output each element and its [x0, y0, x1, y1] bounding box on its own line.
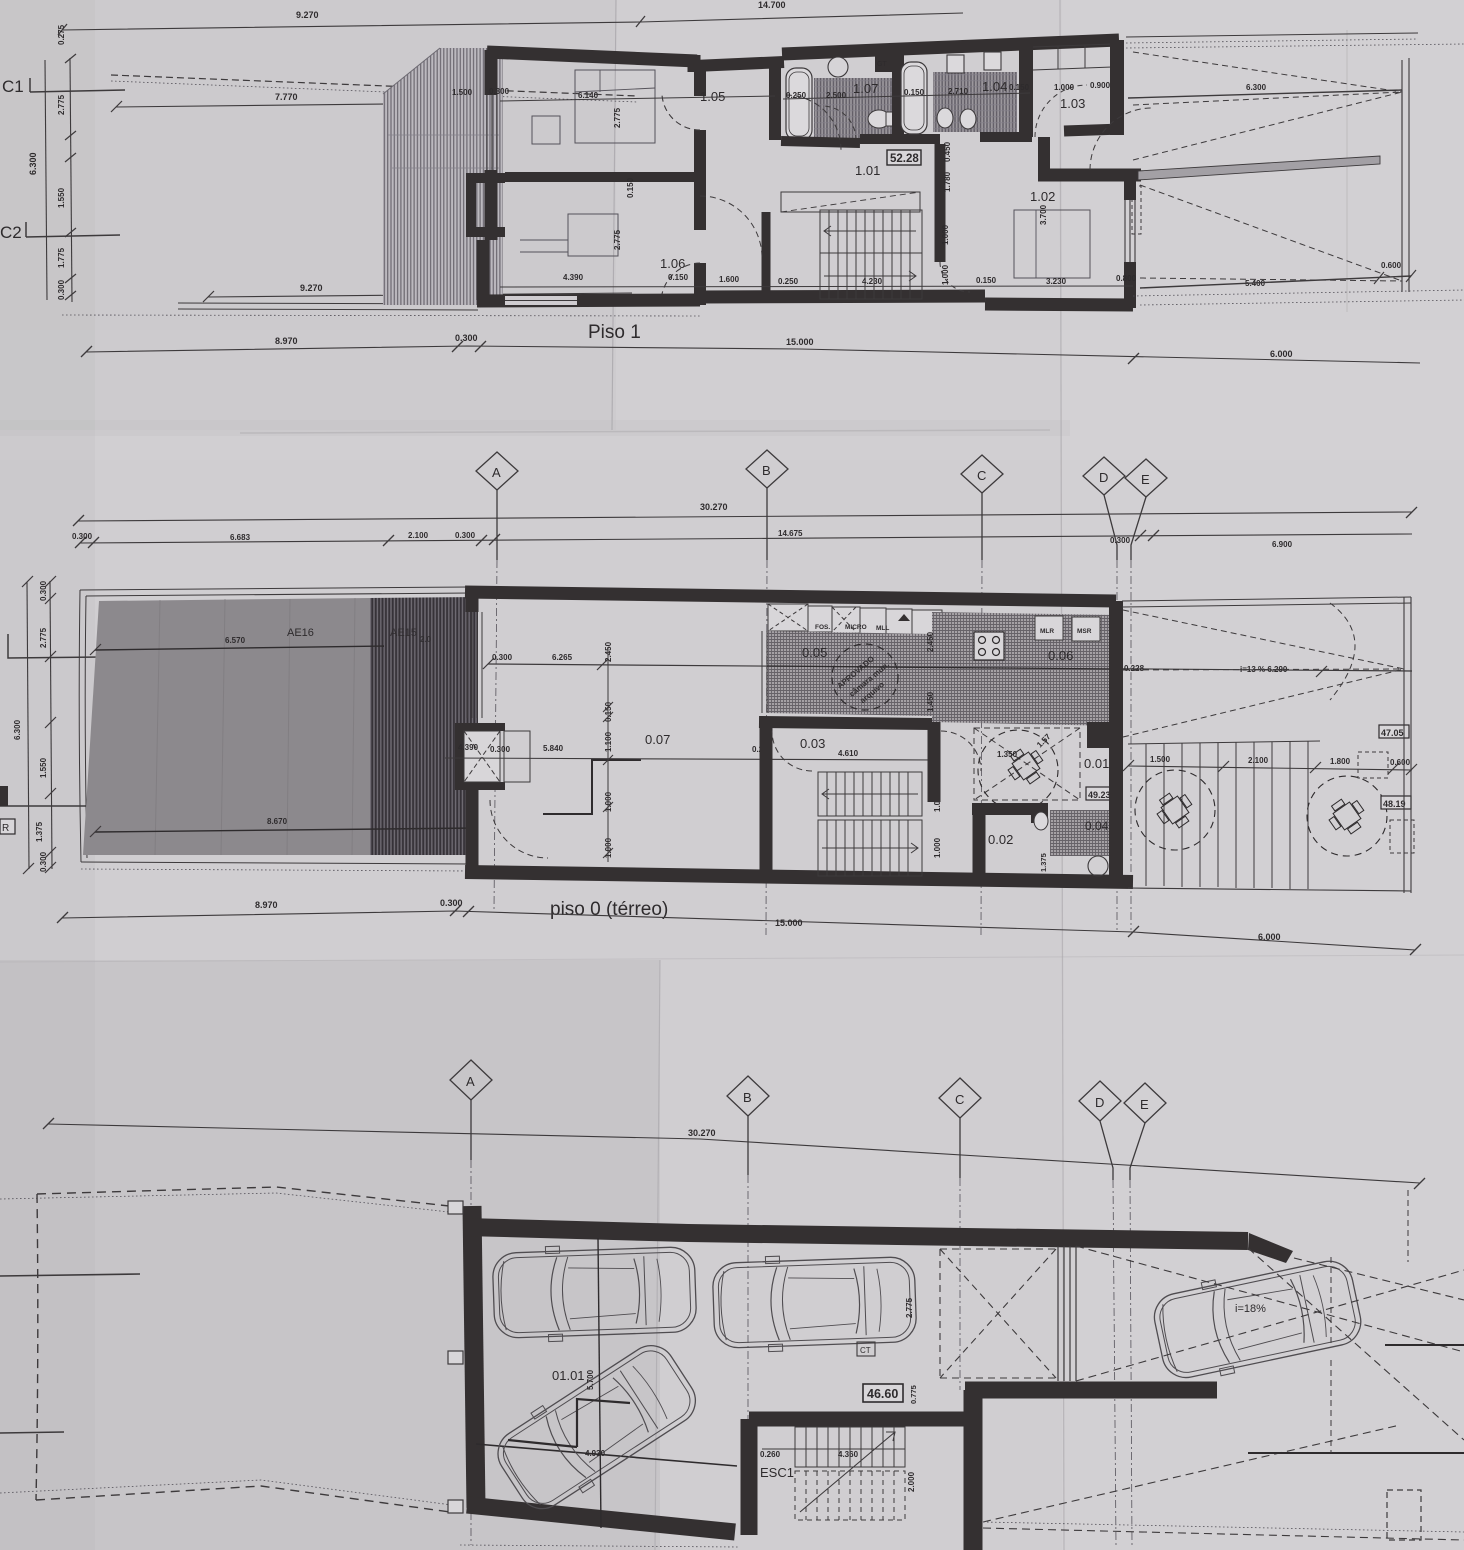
svg-text:0.01: 0.01 — [1084, 756, 1109, 771]
svg-text:0.300: 0.300 — [489, 87, 510, 96]
svg-text:0.600: 0.600 — [1390, 758, 1411, 767]
svg-text:1.000: 1.000 — [1054, 83, 1075, 92]
svg-text:6.000: 6.000 — [1270, 349, 1293, 359]
svg-text:C2: C2 — [0, 223, 22, 242]
svg-text:14.700: 14.700 — [758, 0, 786, 10]
svg-text:1.07: 1.07 — [853, 81, 878, 96]
svg-text:1.03: 1.03 — [1060, 96, 1085, 111]
svg-text:1.01: 1.01 — [855, 163, 880, 178]
svg-text:0.150: 0.150 — [1009, 83, 1030, 92]
svg-text:0.05: 0.05 — [802, 645, 827, 660]
svg-text:1.550: 1.550 — [39, 757, 48, 778]
svg-text:0.03: 0.03 — [800, 736, 825, 751]
svg-text:1.780: 1.780 — [943, 171, 952, 192]
svg-text:9.270: 9.270 — [296, 10, 319, 20]
svg-text:48.19: 48.19 — [1383, 799, 1406, 809]
svg-text:1.500: 1.500 — [452, 88, 473, 97]
svg-text:9.270: 9.270 — [300, 283, 323, 293]
svg-text:GT: GT — [877, 61, 887, 68]
svg-text:0.300: 0.300 — [440, 898, 463, 908]
svg-text:0.07: 0.07 — [645, 732, 670, 747]
svg-text:2.100: 2.100 — [1248, 756, 1269, 765]
svg-text:E: E — [1140, 1097, 1149, 1112]
svg-text:6.265: 6.265 — [552, 653, 573, 662]
svg-text:4.390: 4.390 — [563, 273, 584, 282]
svg-text:0.300: 0.300 — [455, 333, 478, 343]
svg-text:6.140: 6.140 — [578, 91, 599, 100]
svg-text:5.840: 5.840 — [543, 744, 564, 753]
svg-text:1.450: 1.450 — [926, 691, 935, 712]
svg-text:D: D — [1099, 470, 1108, 485]
svg-text:MLL: MLL — [876, 625, 889, 632]
svg-text:1.02: 1.02 — [1030, 189, 1055, 204]
svg-text:C: C — [977, 468, 986, 483]
svg-text:6.683: 6.683 — [230, 533, 251, 542]
svg-text:0.300: 0.300 — [492, 653, 513, 662]
svg-text:i=18%: i=18% — [1235, 1303, 1266, 1315]
svg-text:0.300: 0.300 — [39, 851, 48, 872]
svg-text:0.900: 0.900 — [1090, 81, 1111, 90]
svg-text:4.390: 4.390 — [458, 743, 479, 752]
svg-text:15.000: 15.000 — [786, 337, 814, 347]
svg-text:B: B — [762, 463, 771, 478]
svg-text:4.930: 4.930 — [585, 1449, 606, 1458]
svg-text:2.775: 2.775 — [613, 107, 622, 128]
svg-text:0.300: 0.300 — [1110, 536, 1131, 545]
svg-text:2.775: 2.775 — [613, 229, 622, 250]
svg-text:0.228: 0.228 — [1124, 664, 1145, 673]
svg-text:1.350: 1.350 — [997, 750, 1018, 759]
svg-text:C: C — [955, 1092, 964, 1107]
svg-text:6.570: 6.570 — [225, 636, 246, 645]
svg-text:0.275: 0.275 — [57, 24, 66, 45]
svg-text:2.500: 2.500 — [826, 91, 847, 100]
svg-text:6.300: 6.300 — [28, 152, 38, 175]
svg-text:A: A — [466, 1074, 475, 1089]
svg-text:0.450: 0.450 — [943, 141, 952, 162]
svg-text:MICRO: MICRO — [845, 624, 867, 631]
svg-text:1.04: 1.04 — [982, 79, 1007, 94]
svg-text:1.500: 1.500 — [1150, 755, 1171, 764]
svg-text:6.300: 6.300 — [13, 719, 22, 740]
svg-text:1.000: 1.000 — [933, 837, 942, 858]
svg-text:AE16: AE16 — [287, 627, 314, 639]
svg-text:6.300: 6.300 — [1246, 83, 1267, 92]
svg-text:49.23: 49.23 — [1088, 790, 1111, 800]
svg-text:6.900: 6.900 — [1272, 540, 1293, 549]
svg-text:5.700: 5.700 — [586, 1369, 595, 1390]
svg-text:0.300: 0.300 — [39, 580, 48, 601]
svg-text:46.60: 46.60 — [867, 1387, 898, 1401]
svg-text:15.000: 15.000 — [775, 918, 803, 928]
svg-text:0.150: 0.150 — [976, 276, 997, 285]
svg-text:4.230: 4.230 — [862, 277, 883, 286]
svg-text:2.0: 2.0 — [420, 635, 432, 644]
svg-text:2.775: 2.775 — [57, 94, 66, 115]
svg-text:0.04: 0.04 — [1085, 819, 1109, 833]
svg-text:52.28: 52.28 — [890, 153, 919, 165]
svg-text:1.775: 1.775 — [57, 247, 66, 268]
svg-text:01.01: 01.01 — [552, 1368, 585, 1383]
svg-text:2.000: 2.000 — [907, 1471, 916, 1492]
svg-text:0.600: 0.600 — [1381, 261, 1402, 270]
svg-text:CT: CT — [860, 1346, 871, 1355]
svg-text:7.770: 7.770 — [275, 92, 298, 102]
svg-text:0.300: 0.300 — [57, 279, 66, 300]
svg-text:2.450: 2.450 — [926, 631, 935, 652]
svg-text:0.260: 0.260 — [760, 1450, 781, 1459]
svg-text:0.250: 0.250 — [778, 277, 799, 286]
svg-text:0.250: 0.250 — [786, 91, 807, 100]
svg-text:6.000: 6.000 — [1258, 932, 1281, 942]
svg-text:1.000: 1.000 — [941, 264, 950, 285]
svg-text:1.06: 1.06 — [660, 256, 685, 271]
svg-text:0.800: 0.800 — [1116, 274, 1137, 283]
svg-text:Piso 1: Piso 1 — [588, 322, 641, 343]
svg-text:0.06: 0.06 — [1048, 648, 1073, 663]
svg-text:D: D — [1095, 1095, 1104, 1110]
svg-text:30.270: 30.270 — [688, 1128, 716, 1138]
svg-text:E: E — [1141, 472, 1150, 487]
svg-text:1.550: 1.550 — [57, 187, 66, 208]
svg-text:8.670: 8.670 — [267, 817, 288, 826]
svg-text:3.700: 3.700 — [1039, 204, 1048, 225]
svg-text:2.775: 2.775 — [39, 627, 48, 648]
svg-text:B: B — [743, 1090, 752, 1105]
svg-text:1.375: 1.375 — [1039, 853, 1048, 872]
svg-text:0.02: 0.02 — [988, 832, 1013, 847]
svg-text:MLR: MLR — [1040, 628, 1054, 635]
svg-text:R: R — [2, 823, 9, 834]
svg-text:2.775: 2.775 — [905, 1297, 914, 1318]
svg-text:3.230: 3.230 — [1046, 277, 1067, 286]
svg-text:2.710: 2.710 — [948, 87, 969, 96]
svg-text:8.970: 8.970 — [255, 900, 278, 910]
svg-text:0.150: 0.150 — [904, 88, 925, 97]
svg-text:C1: C1 — [2, 77, 24, 96]
svg-text:1.600: 1.600 — [719, 275, 740, 284]
svg-text:0.300: 0.300 — [72, 532, 93, 541]
svg-text:1.000: 1.000 — [941, 224, 950, 245]
svg-text:2.100: 2.100 — [408, 531, 429, 540]
svg-text:1.800: 1.800 — [1330, 757, 1351, 766]
svg-text:1.375: 1.375 — [35, 821, 44, 842]
svg-text:30.270: 30.270 — [700, 502, 728, 512]
svg-text:47.05: 47.05 — [1381, 728, 1404, 738]
svg-text:0.150: 0.150 — [626, 177, 635, 198]
svg-text:FOS.: FOS. — [815, 624, 830, 631]
svg-text:0.300: 0.300 — [455, 531, 476, 540]
svg-text:MSR: MSR — [1077, 628, 1092, 635]
svg-text:ESC1: ESC1 — [760, 1465, 794, 1480]
svg-text:4.360: 4.360 — [838, 1450, 859, 1459]
svg-text:14.675: 14.675 — [778, 529, 803, 538]
svg-text:0.150: 0.150 — [668, 273, 689, 282]
svg-text:0.775: 0.775 — [909, 1385, 918, 1404]
svg-text:AE15: AE15 — [390, 627, 417, 639]
svg-text:8.970: 8.970 — [275, 336, 298, 346]
svg-text:0.300: 0.300 — [490, 745, 511, 754]
svg-text:4.610: 4.610 — [838, 749, 859, 758]
svg-text:A: A — [492, 465, 501, 480]
